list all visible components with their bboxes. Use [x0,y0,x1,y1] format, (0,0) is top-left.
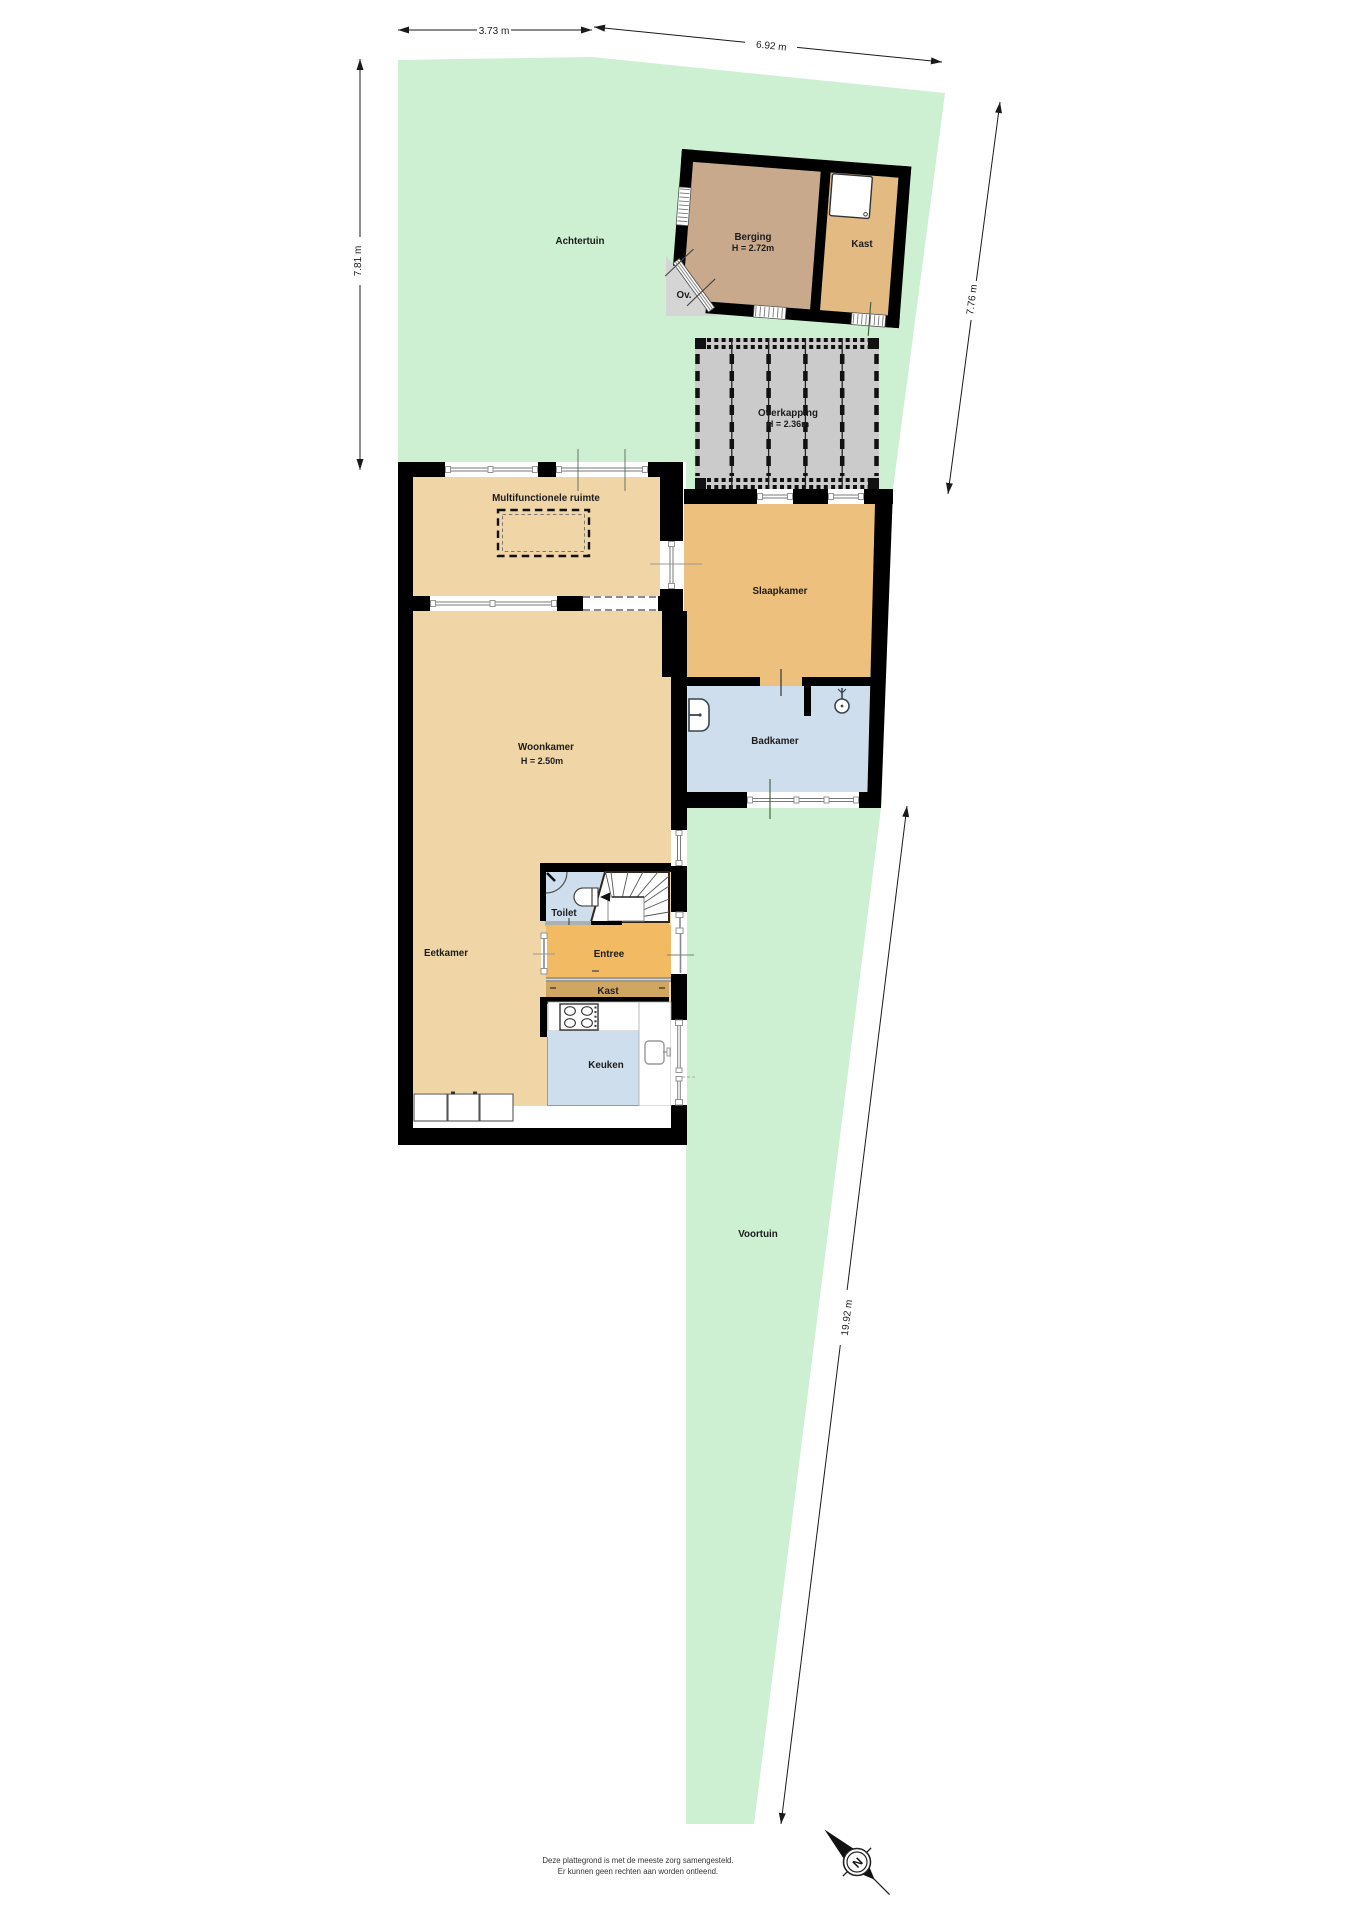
svg-text:3.73 m: 3.73 m [479,26,510,37]
svg-text:Eetkamer: Eetkamer [424,948,468,959]
svg-text:Ov.: Ov. [676,290,691,301]
svg-text:H = 2.50m: H = 2.50m [521,756,563,766]
svg-text:Slaapkamer: Slaapkamer [752,586,807,597]
svg-text:Achtertuin: Achtertuin [556,236,605,247]
svg-text:Kast: Kast [851,239,873,250]
svg-text:H = 2.72m: H = 2.72m [732,243,774,253]
svg-text:Deze plattegrond is met de mee: Deze plattegrond is met de meeste zorg s… [542,1856,733,1865]
svg-text:Er kunnen geen rechten aan wor: Er kunnen geen rechten aan worden ontlee… [558,1867,718,1876]
svg-text:Keuken: Keuken [588,1060,623,1071]
svg-text:Overkapping: Overkapping [758,408,818,419]
svg-text:Multifunctionele ruimte: Multifunctionele ruimte [492,493,600,504]
svg-text:Badkamer: Badkamer [751,736,799,747]
svg-text:H = 2.36m: H = 2.36m [767,419,809,429]
svg-text:Voortuin: Voortuin [738,1229,778,1240]
svg-text:Woonkamer: Woonkamer [518,742,574,753]
svg-text:Entree: Entree [594,949,625,960]
svg-text:7.81 m: 7.81 m [353,246,364,277]
svg-text:Toilet: Toilet [551,908,577,919]
svg-text:Kast: Kast [597,986,619,997]
svg-text:Berging: Berging [734,232,771,243]
